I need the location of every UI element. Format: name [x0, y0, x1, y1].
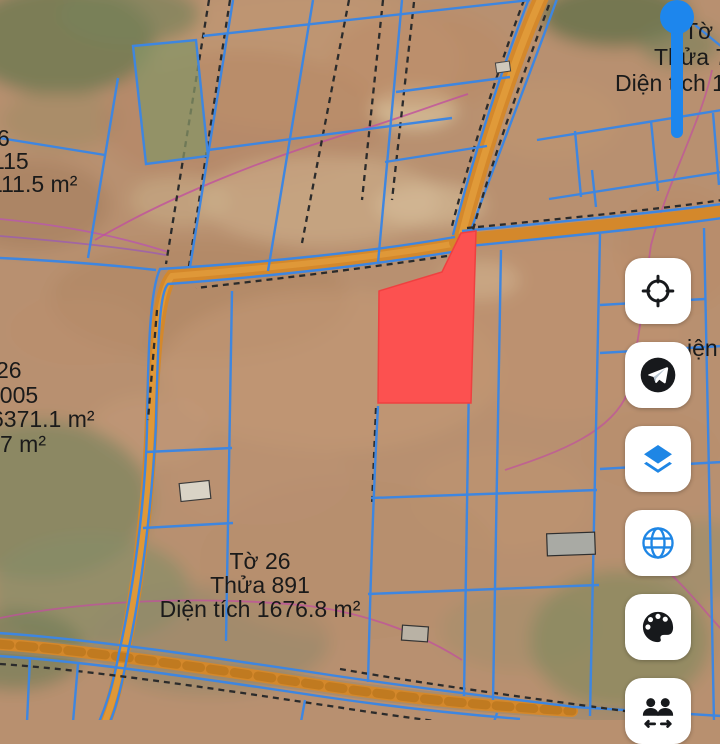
parcel-label-bottom-center: Tờ 26 Thửa 891 Diện tích 1676.8 m² [120, 549, 400, 621]
users-icon [639, 692, 677, 730]
parcel-label-left-upper-line3: 111.5 m² [0, 172, 77, 196]
send-icon [639, 356, 677, 394]
parcel-label-right-clipped: iện [687, 336, 718, 360]
parcel-label-left-middle-line2: 3005 [0, 383, 38, 407]
vegetated-parcel [133, 40, 208, 164]
send-button[interactable] [625, 342, 691, 408]
parcel-label-left-middle-line3: 6371.1 m² [0, 407, 95, 431]
palette-button[interactable] [625, 594, 691, 660]
parcel-label-left-middle-line4: 7 m² [0, 432, 46, 456]
layers-icon [639, 440, 677, 478]
users-button[interactable] [625, 678, 691, 744]
map-toolbar [625, 0, 691, 720]
parcel-number: Thửa 891 [120, 573, 400, 597]
parcel-label-left-upper-line2: 115 [0, 149, 29, 173]
palette-icon [639, 608, 677, 646]
globe-button[interactable] [625, 510, 691, 576]
parcel-label-left-middle-line1: 26 [0, 358, 22, 382]
globe-icon [639, 524, 677, 562]
parcel-sheet-number: Tờ 26 [120, 549, 400, 573]
layers-button[interactable] [625, 426, 691, 492]
parcel-area: Diện tích 1676.8 m² [120, 597, 400, 621]
locate-button[interactable] [625, 258, 691, 324]
map-app-screen: { "view": {"type": "satellite-cadastral-… [0, 0, 720, 720]
parcel-label-left-upper-line1: 6 [0, 126, 10, 150]
locate-icon [640, 273, 676, 309]
